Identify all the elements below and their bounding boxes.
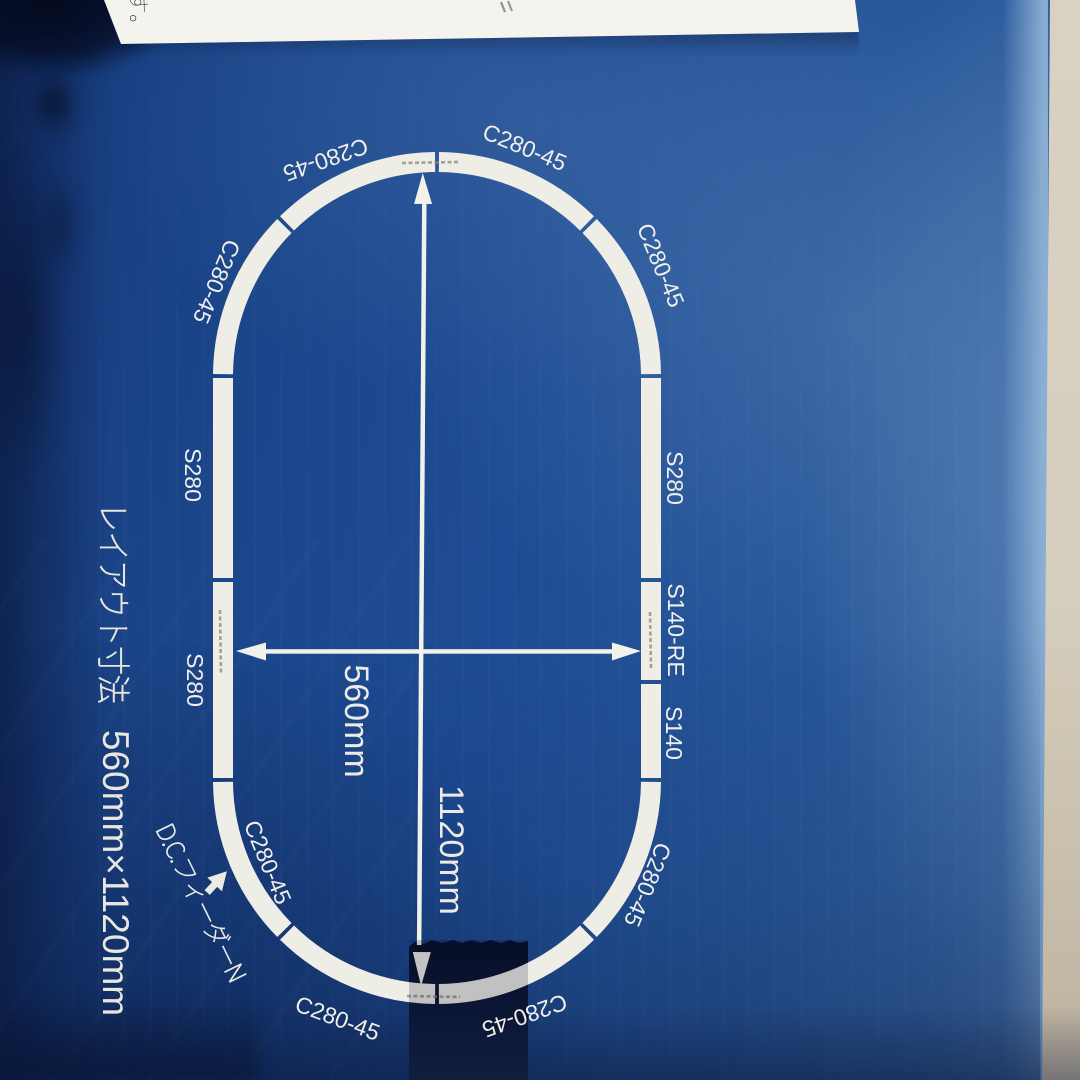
svg-text:S280: S280 — [182, 653, 208, 707]
svg-text:560mm: 560mm — [337, 664, 375, 777]
svg-text:S280: S280 — [180, 448, 206, 502]
svg-text:1120mm: 1120mm — [432, 785, 470, 915]
svg-text:S140-RE: S140-RE — [663, 583, 689, 676]
svg-text:560mm×1120mm: 560mm×1120mm — [95, 730, 136, 1016]
svg-text:S280: S280 — [662, 451, 688, 505]
svg-text:C280-45: C280-45 — [292, 991, 384, 1046]
svg-text:S140: S140 — [661, 706, 687, 760]
